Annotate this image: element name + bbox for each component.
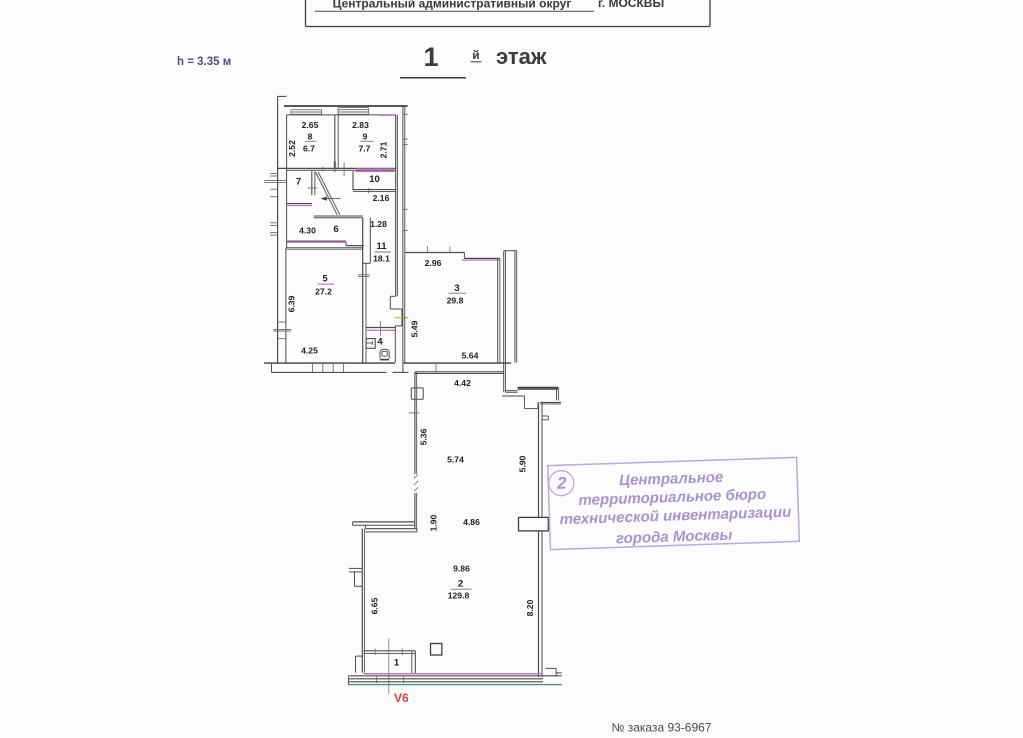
svg-text:2: 2 — [556, 474, 568, 493]
svg-text:2.16: 2.16 — [373, 193, 390, 203]
svg-text:6: 6 — [333, 224, 338, 235]
svg-text:29.8: 29.8 — [447, 296, 464, 306]
svg-text:2.83: 2.83 — [352, 120, 369, 130]
svg-text:11: 11 — [376, 241, 387, 252]
svg-text:4.42: 4.42 — [454, 378, 471, 388]
svg-text:h = 3.35 м: h = 3.35 м — [177, 56, 231, 68]
svg-text:5: 5 — [322, 274, 328, 285]
svg-text:Центральный административный о: Центральный административный округ — [333, 0, 572, 11]
svg-text:9.86: 9.86 — [453, 564, 470, 574]
svg-text:4: 4 — [377, 337, 383, 348]
svg-text:7.7: 7.7 — [359, 144, 371, 154]
svg-text:5.90: 5.90 — [518, 455, 528, 472]
svg-text:4.86: 4.86 — [463, 517, 480, 527]
svg-text:27.2: 27.2 — [315, 287, 332, 297]
svg-text:129.8: 129.8 — [448, 591, 470, 601]
svg-text:1: 1 — [394, 658, 400, 669]
svg-text:6.7: 6.7 — [303, 144, 315, 154]
svg-text:10: 10 — [369, 174, 380, 185]
svg-text:1: 1 — [423, 42, 438, 72]
svg-text:1.90: 1.90 — [429, 514, 439, 531]
svg-text:4.25: 4.25 — [301, 346, 318, 356]
svg-text:7: 7 — [296, 177, 301, 188]
svg-text:2.52: 2.52 — [287, 140, 297, 157]
svg-text:5.64: 5.64 — [462, 351, 479, 361]
svg-text:2.96: 2.96 — [425, 258, 442, 268]
svg-text:2.65: 2.65 — [302, 120, 319, 130]
svg-text:г. МОСКВЫ: г. МОСКВЫ — [598, 0, 664, 10]
svg-text:8: 8 — [308, 132, 313, 142]
svg-text:этаж: этаж — [496, 44, 547, 69]
svg-text:№ заказа 93-6967: № заказа 93-6967 — [612, 721, 712, 735]
svg-text:5.74: 5.74 — [447, 455, 464, 465]
svg-text:5.36: 5.36 — [419, 428, 429, 445]
svg-text:4.30: 4.30 — [299, 226, 316, 236]
svg-text:1.28: 1.28 — [370, 219, 387, 229]
svg-text:3: 3 — [454, 283, 459, 294]
svg-text:18.1: 18.1 — [373, 254, 390, 264]
svg-text:V6: V6 — [394, 691, 409, 705]
svg-text:9: 9 — [363, 132, 368, 142]
svg-text:6.39: 6.39 — [287, 295, 297, 312]
svg-text:2.71: 2.71 — [379, 141, 389, 158]
svg-text:6.65: 6.65 — [370, 597, 380, 614]
svg-text:2: 2 — [458, 579, 463, 590]
svg-text:5.49: 5.49 — [410, 320, 420, 337]
svg-text:й: й — [472, 48, 479, 62]
svg-text:8.20: 8.20 — [525, 599, 535, 616]
svg-text:Центральное: Центральное — [619, 469, 724, 489]
